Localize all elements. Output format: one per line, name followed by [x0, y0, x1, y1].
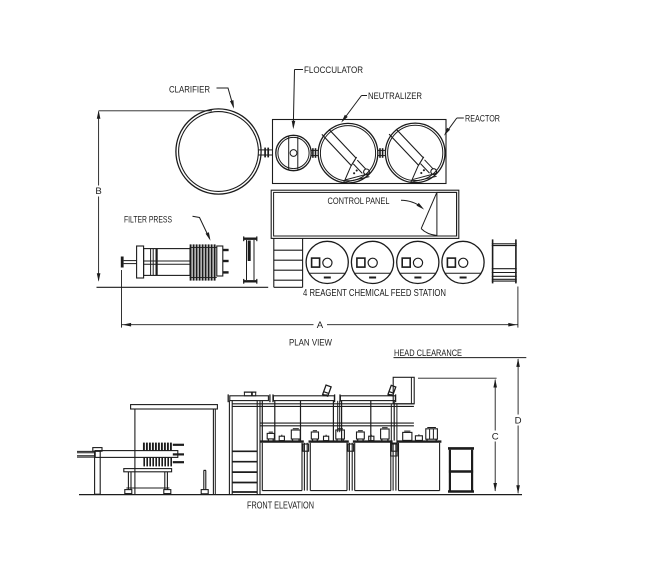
svg-text:NEUTRALIZER: NEUTRALIZER [368, 91, 422, 102]
svg-text:A: A [317, 320, 324, 331]
svg-text:4 REAGENT CHEMICAL FEED STATIO: 4 REAGENT CHEMICAL FEED STATION [303, 288, 446, 299]
svg-text:REACTOR: REACTOR [465, 114, 500, 125]
svg-text:FRONT ELEVATION: FRONT ELEVATION [247, 501, 314, 512]
svg-text:FILTER PRESS: FILTER PRESS [124, 214, 172, 225]
svg-text:PLAN VIEW: PLAN VIEW [289, 338, 333, 349]
svg-text:CONTROL PANEL: CONTROL PANEL [328, 196, 391, 207]
svg-text:FLOCCULATOR: FLOCCULATOR [304, 65, 363, 76]
svg-text:C: C [492, 431, 499, 442]
svg-text:D: D [515, 415, 522, 426]
svg-text:B: B [95, 186, 101, 197]
svg-text:CLARIFIER: CLARIFIER [169, 84, 210, 95]
